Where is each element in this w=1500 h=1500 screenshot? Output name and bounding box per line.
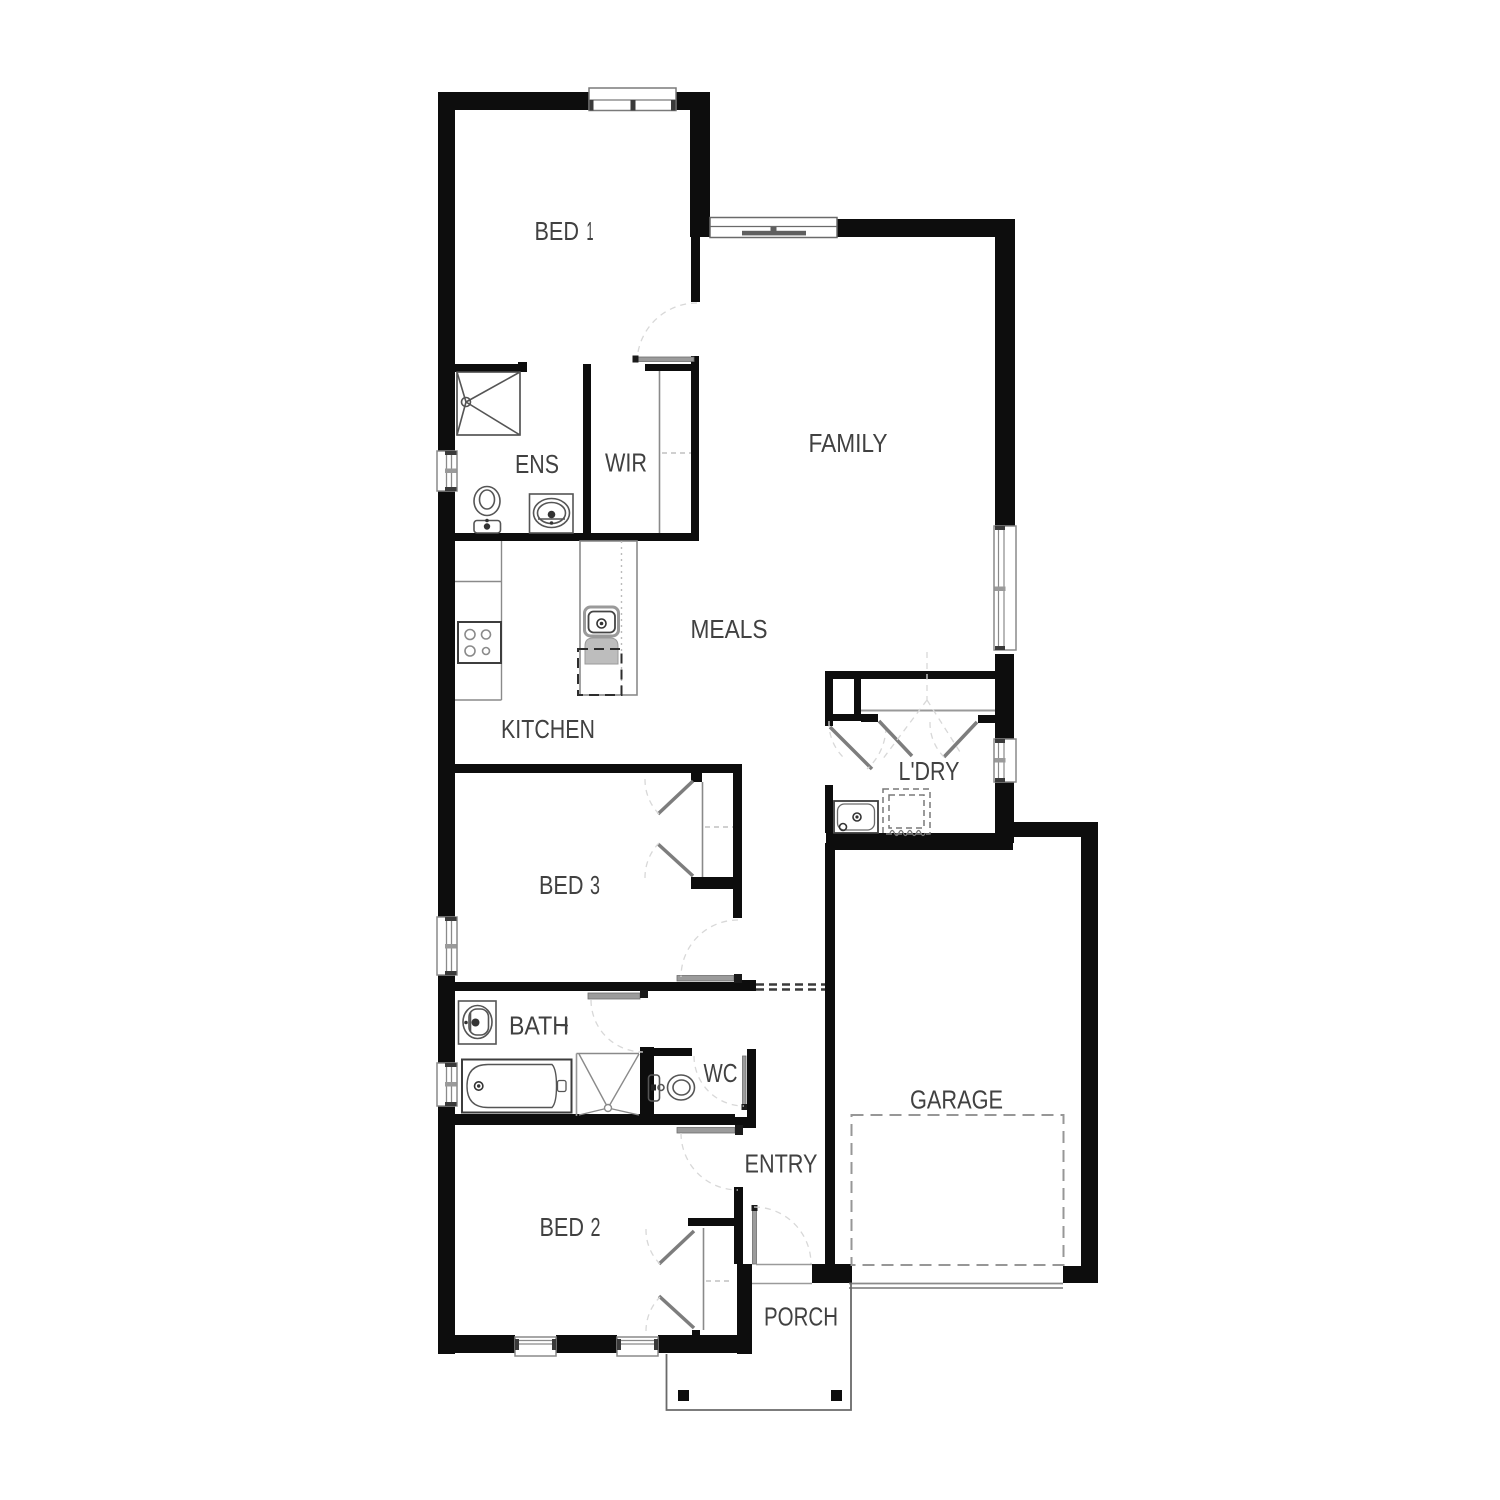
svg-text:WIR: WIR [605,448,647,478]
svg-text:FAMILY: FAMILY [809,428,888,458]
svg-text:MEALS: MEALS [691,614,768,644]
svg-text:WC: WC [704,1058,738,1088]
svg-text:ENS: ENS [515,449,559,479]
svg-text:ENTRY: ENTRY [745,1149,818,1179]
svg-text:KITCHEN: KITCHEN [501,714,595,744]
svg-text:3: 3 [590,870,600,900]
svg-text:BED: BED [539,870,584,900]
svg-text:BED: BED [535,216,580,246]
svg-text:PORCH: PORCH [764,1302,838,1332]
svg-text:BED: BED [540,1212,585,1242]
svg-text:1: 1 [587,216,594,246]
svg-text:2: 2 [591,1212,601,1242]
svg-text:BATH: BATH [509,1011,569,1041]
svg-text:L'DRY: L'DRY [899,756,960,786]
svg-text:GARAGE: GARAGE [910,1085,1003,1115]
